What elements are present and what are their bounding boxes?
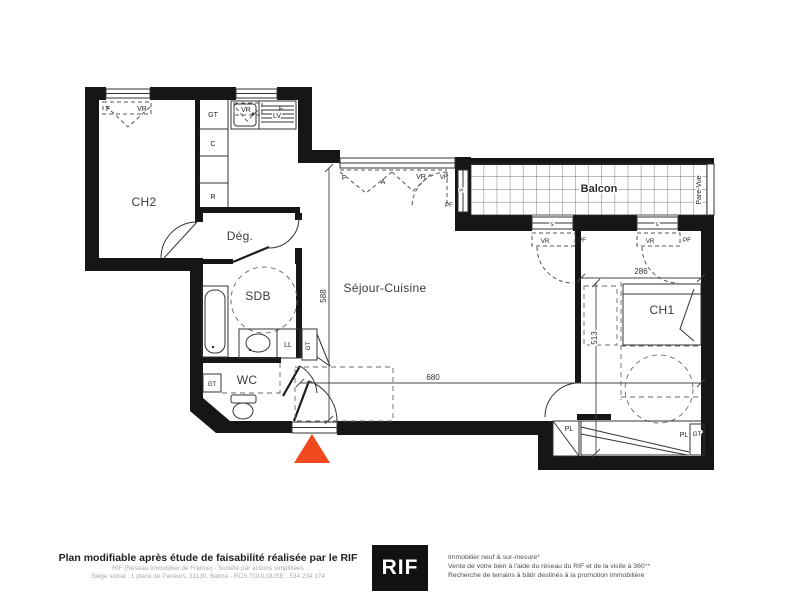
footer: Plan modifiable après étude de faisabili… (0, 540, 800, 600)
label-gt-sdb: GT (305, 341, 312, 350)
footer-left-block: Plan modifiable après étude de faisabili… (58, 552, 358, 582)
label-gt-wc: GT (208, 381, 217, 388)
pare-vue-screen (707, 164, 714, 215)
doors (161, 218, 579, 421)
label-a-sejour: A (381, 179, 386, 186)
footer-tagline-3: Recherche de terrains à bâtir destinés à… (448, 572, 778, 581)
sill-label-s-2: s (655, 221, 658, 228)
pare-vue-label: Pare-Vue (696, 175, 703, 204)
label-gt-ch1: GT (693, 431, 702, 438)
room-label-balcon: Balcon (581, 183, 618, 195)
toilet-tank (231, 395, 256, 403)
footer-tagline-2: Vente de votre bien à l'aide du réseau d… (448, 563, 778, 572)
label-vr-ch2: VR (137, 106, 147, 113)
wardrobe-suggested (584, 286, 617, 345)
label-pf-bay: PF (445, 202, 453, 209)
bathtub (202, 286, 228, 357)
dimension-588: 588 (319, 289, 328, 303)
label-pl-left: PL (565, 426, 574, 433)
sill-label-s-bay: s (458, 188, 465, 191)
label-lv: LV (273, 113, 281, 120)
label-ll: LL (284, 342, 292, 349)
rif-logo-text: RIF (382, 556, 419, 580)
vanity (239, 329, 277, 358)
label-vr-pf1: VR (541, 238, 550, 245)
room-label-ch1: CH1 (650, 303, 675, 317)
room-label-ch2: CH2 (132, 195, 157, 209)
sill-label-s-1: s (550, 221, 553, 228)
label-pl-right: PL (680, 432, 689, 439)
room-label-wc: WC (237, 373, 258, 387)
toilet-bowl (233, 403, 253, 419)
turning-circle-ch1 (625, 355, 693, 423)
label-gt-kitchen: GT (208, 112, 218, 119)
room-label-degagement: Dég. (227, 229, 254, 243)
label-vr-bay: VR (440, 174, 449, 181)
label-f-ch2: F (106, 106, 110, 113)
bathroom-fixtures: LL GT (202, 267, 330, 366)
label-c-kitchen: C (210, 141, 215, 148)
rif-logo: RIF (372, 545, 428, 591)
outer-walls (85, 87, 714, 470)
label-pf-pf1: PF (578, 237, 586, 244)
label-f-sejour: F (342, 175, 346, 182)
room-label-sdb: SDB (245, 289, 271, 303)
floor-plan-page: Balcon Pare-Vue s s s LV GT C R F VR VR … (0, 0, 800, 600)
label-vr-kitchen: VR (241, 107, 251, 114)
dimension-513: 513 (590, 331, 599, 345)
floor-plan-canvas: Balcon Pare-Vue s s s LV GT C R F VR VR … (0, 0, 800, 540)
dimension-286: 286 (634, 267, 648, 276)
label-r-kitchen: R (210, 194, 215, 201)
entrance-arrow-icon (294, 434, 330, 463)
label-pf-pf2: PF (683, 237, 691, 244)
label-vr-pf2: VR (646, 238, 655, 245)
room-label-sejour: Séjour-Cuisine (344, 281, 427, 295)
kitchen-fixtures: LV GT C R (199, 100, 296, 207)
footer-address-line: Siège social : 1 place de Paveurs, 31130… (58, 573, 358, 581)
closet-pl-right (581, 427, 689, 455)
footer-right-block: Immobilier neuf & sur-mesure* Vente de v… (448, 554, 778, 580)
footer-title: Plan modifiable après étude de faisabili… (58, 552, 358, 565)
interior-walls (195, 100, 611, 420)
footer-company-line: RIF (Réseau Immobilier de France) - Soci… (58, 565, 358, 573)
dimension-680: 680 (426, 373, 440, 382)
label-f-kitchen: F (279, 106, 283, 113)
footer-tagline-1: Immobilier neuf & sur-mesure* (448, 554, 778, 563)
